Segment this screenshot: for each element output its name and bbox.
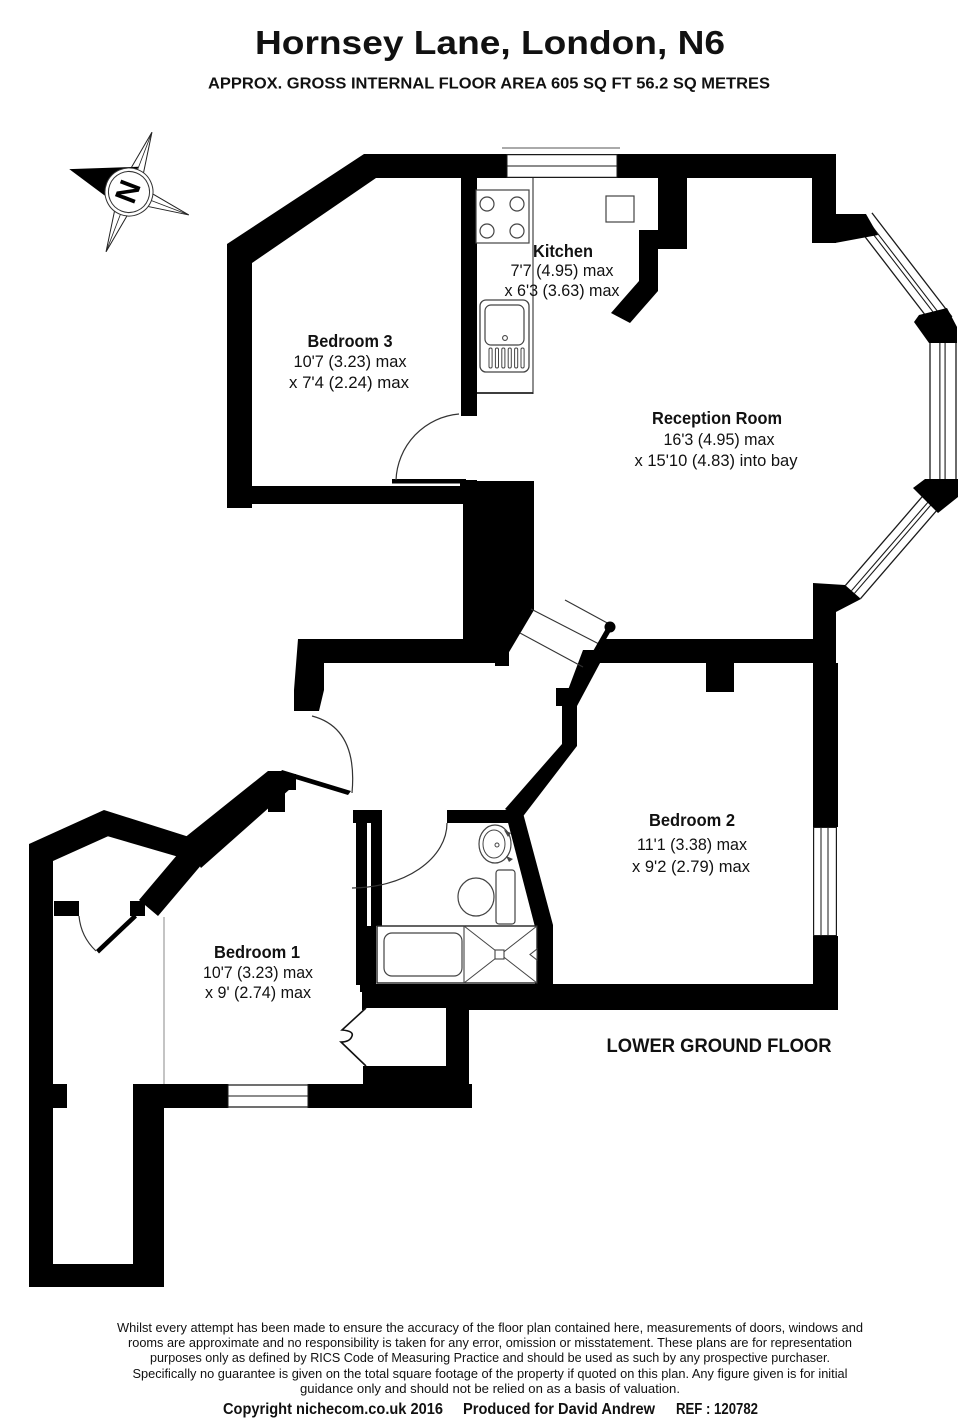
- svg-text:10'7 (3.23) max: 10'7 (3.23) max: [203, 963, 313, 982]
- svg-text:Produced for David Andrew: Produced for David Andrew: [463, 1401, 656, 1418]
- svg-text:x 15'10 (4.83) into bay: x 15'10 (4.83) into bay: [635, 451, 798, 470]
- svg-text:Bedroom 1: Bedroom 1: [214, 942, 300, 962]
- svg-text:x 9'2 (2.79) max: x 9'2 (2.79) max: [632, 857, 750, 876]
- svg-text:Kitchen: Kitchen: [533, 241, 593, 261]
- svg-text:APPROX. GROSS INTERNAL FLOOR A: APPROX. GROSS INTERNAL FLOOR AREA 605 SQ…: [208, 76, 770, 93]
- svg-text:11'1 (3.38) max: 11'1 (3.38) max: [637, 835, 747, 854]
- svg-text:purposes only as defined by RI: purposes only as defined by RICS Code of…: [150, 1350, 830, 1365]
- svg-text:rooms are approximate and no r: rooms are approximate and no responsibil…: [128, 1335, 852, 1350]
- svg-text:Hornsey Lane, London, N6: Hornsey Lane, London, N6: [255, 24, 725, 61]
- svg-text:Whilst every attempt has been: Whilst every attempt has been made to en…: [117, 1320, 863, 1335]
- svg-text:REF : 120782: REF : 120782: [676, 1401, 758, 1418]
- svg-text:guidance only and should not b: guidance only and should not be relied o…: [300, 1381, 680, 1396]
- svg-text:x 9' (2.74) max: x 9' (2.74) max: [205, 983, 311, 1002]
- svg-text:16'3 (4.95) max: 16'3 (4.95) max: [664, 430, 775, 449]
- svg-text:x 6'3 (3.63) max: x 6'3 (3.63) max: [505, 281, 620, 300]
- svg-text:LOWER GROUND FLOOR: LOWER GROUND FLOOR: [607, 1036, 832, 1057]
- svg-text:7'7 (4.95) max: 7'7 (4.95) max: [511, 261, 614, 280]
- svg-text:Bedroom 3: Bedroom 3: [308, 331, 393, 351]
- svg-text:Specifically no guarantee is g: Specifically no guarantee is given on th…: [133, 1366, 848, 1381]
- svg-text:Copyright nichecom.co.uk 2016: Copyright nichecom.co.uk 2016: [223, 1401, 443, 1418]
- svg-text:Bedroom 2: Bedroom 2: [649, 810, 735, 830]
- svg-text:x 7'4 (2.24) max: x 7'4 (2.24) max: [289, 373, 409, 392]
- svg-text:10'7 (3.23) max: 10'7 (3.23) max: [294, 352, 407, 371]
- svg-text:Reception Room: Reception Room: [652, 408, 782, 428]
